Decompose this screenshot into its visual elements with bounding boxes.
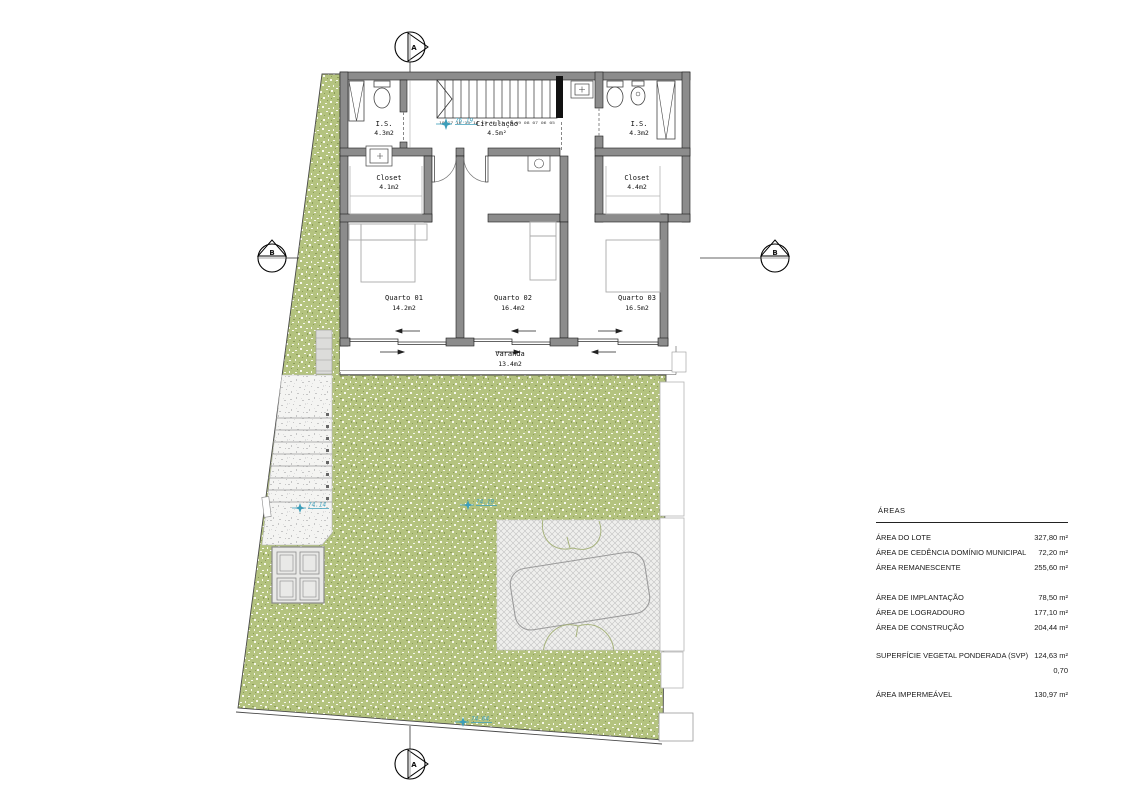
section-marker-a-top: A [395, 32, 428, 62]
section-marker-b-right: B [761, 240, 789, 272]
floor-plan-sheet: 18 17 16 15 14 13 12 11 10 09 08 07 06 0… [0, 0, 1138, 807]
table-row: 0,70 [876, 663, 1068, 678]
stair-wall [556, 76, 563, 118]
svg-text:4.4m2: 4.4m2 [627, 183, 647, 191]
room-label-is-right: I.S. [631, 120, 648, 128]
svg-text:74.14: 74.14 [308, 502, 326, 509]
equipment-grate [272, 547, 324, 603]
room-label-varanda: Varanda [495, 350, 525, 358]
svg-text:A: A [411, 761, 417, 769]
building: 18 17 16 15 14 13 12 11 10 09 08 07 06 0… [340, 72, 690, 375]
room-label-closet-right: Closet [624, 174, 649, 182]
svg-text:A: A [411, 44, 417, 52]
table-gap [876, 635, 1068, 648]
table-row: SUPERFÍCIE VEGETAL PONDERADA (SVP) 124,6… [876, 648, 1068, 663]
section-marker-a-bottom: A [395, 749, 428, 779]
svg-text:B: B [772, 249, 777, 257]
section-marker-b-left: B [258, 240, 286, 272]
svg-text:B: B [269, 249, 274, 257]
table-gap [876, 678, 1068, 687]
svg-text:74.04: 74.04 [471, 716, 489, 723]
table-row: ÁREA REMANESCENTE 255,60 m² [876, 560, 1068, 575]
svg-text:13.4m2: 13.4m2 [498, 360, 522, 368]
svg-text:4.3m2: 4.3m2 [374, 129, 394, 137]
side-steps [316, 330, 332, 374]
exterior-path [262, 375, 332, 545]
room-label-quarto-03: Quarto 03 [618, 294, 656, 302]
svg-text:16.4m2: 16.4m2 [501, 304, 525, 312]
svg-text:4.1m2: 4.1m2 [379, 183, 399, 191]
table-row: ÁREA DE IMPLANTAÇÃO 78,50 m² [876, 590, 1068, 605]
svg-text:74.19: 74.19 [476, 499, 494, 506]
room-label-quarto-01: Quarto 01 [385, 294, 423, 302]
table-row: ÁREA DE CEDÊNCIA DOMÍNIO MUNICIPAL 72,20… [876, 545, 1068, 560]
table-row: ÁREA IMPERMEÁVEL 130,97 m² [876, 687, 1068, 702]
svg-text:14.2m2: 14.2m2 [392, 304, 416, 312]
lower-floor-edge [659, 382, 693, 741]
table-gap [876, 575, 1068, 590]
table-row: ÁREA DE LOGRADOURO 177,10 m² [876, 605, 1068, 620]
room-label-quarto-02: Quarto 02 [494, 294, 532, 302]
areas-table: ÁREAS ÁREA DO LOTE 327,80 m² ÁREA DE CED… [876, 506, 1068, 702]
table-row: ÁREA DE CONSTRUÇÃO 204,44 m² [876, 620, 1068, 635]
room-label-circulacao: Circulação [476, 120, 518, 128]
pool-deck [497, 519, 662, 652]
svg-text:4.3m2: 4.3m2 [629, 129, 649, 137]
room-label-closet-left: Closet [376, 174, 401, 182]
balcony-side-notch [672, 352, 686, 372]
svg-text:76.19: 76.19 [455, 118, 473, 125]
svg-text:4.5m²: 4.5m² [487, 129, 507, 137]
svg-text:16.5m2: 16.5m2 [625, 304, 649, 312]
areas-table-title: ÁREAS [878, 506, 1068, 515]
room-label-is-left: I.S. [376, 120, 393, 128]
areas-table-rule [876, 522, 1068, 523]
table-row: ÁREA DO LOTE 327,80 m² [876, 530, 1068, 545]
